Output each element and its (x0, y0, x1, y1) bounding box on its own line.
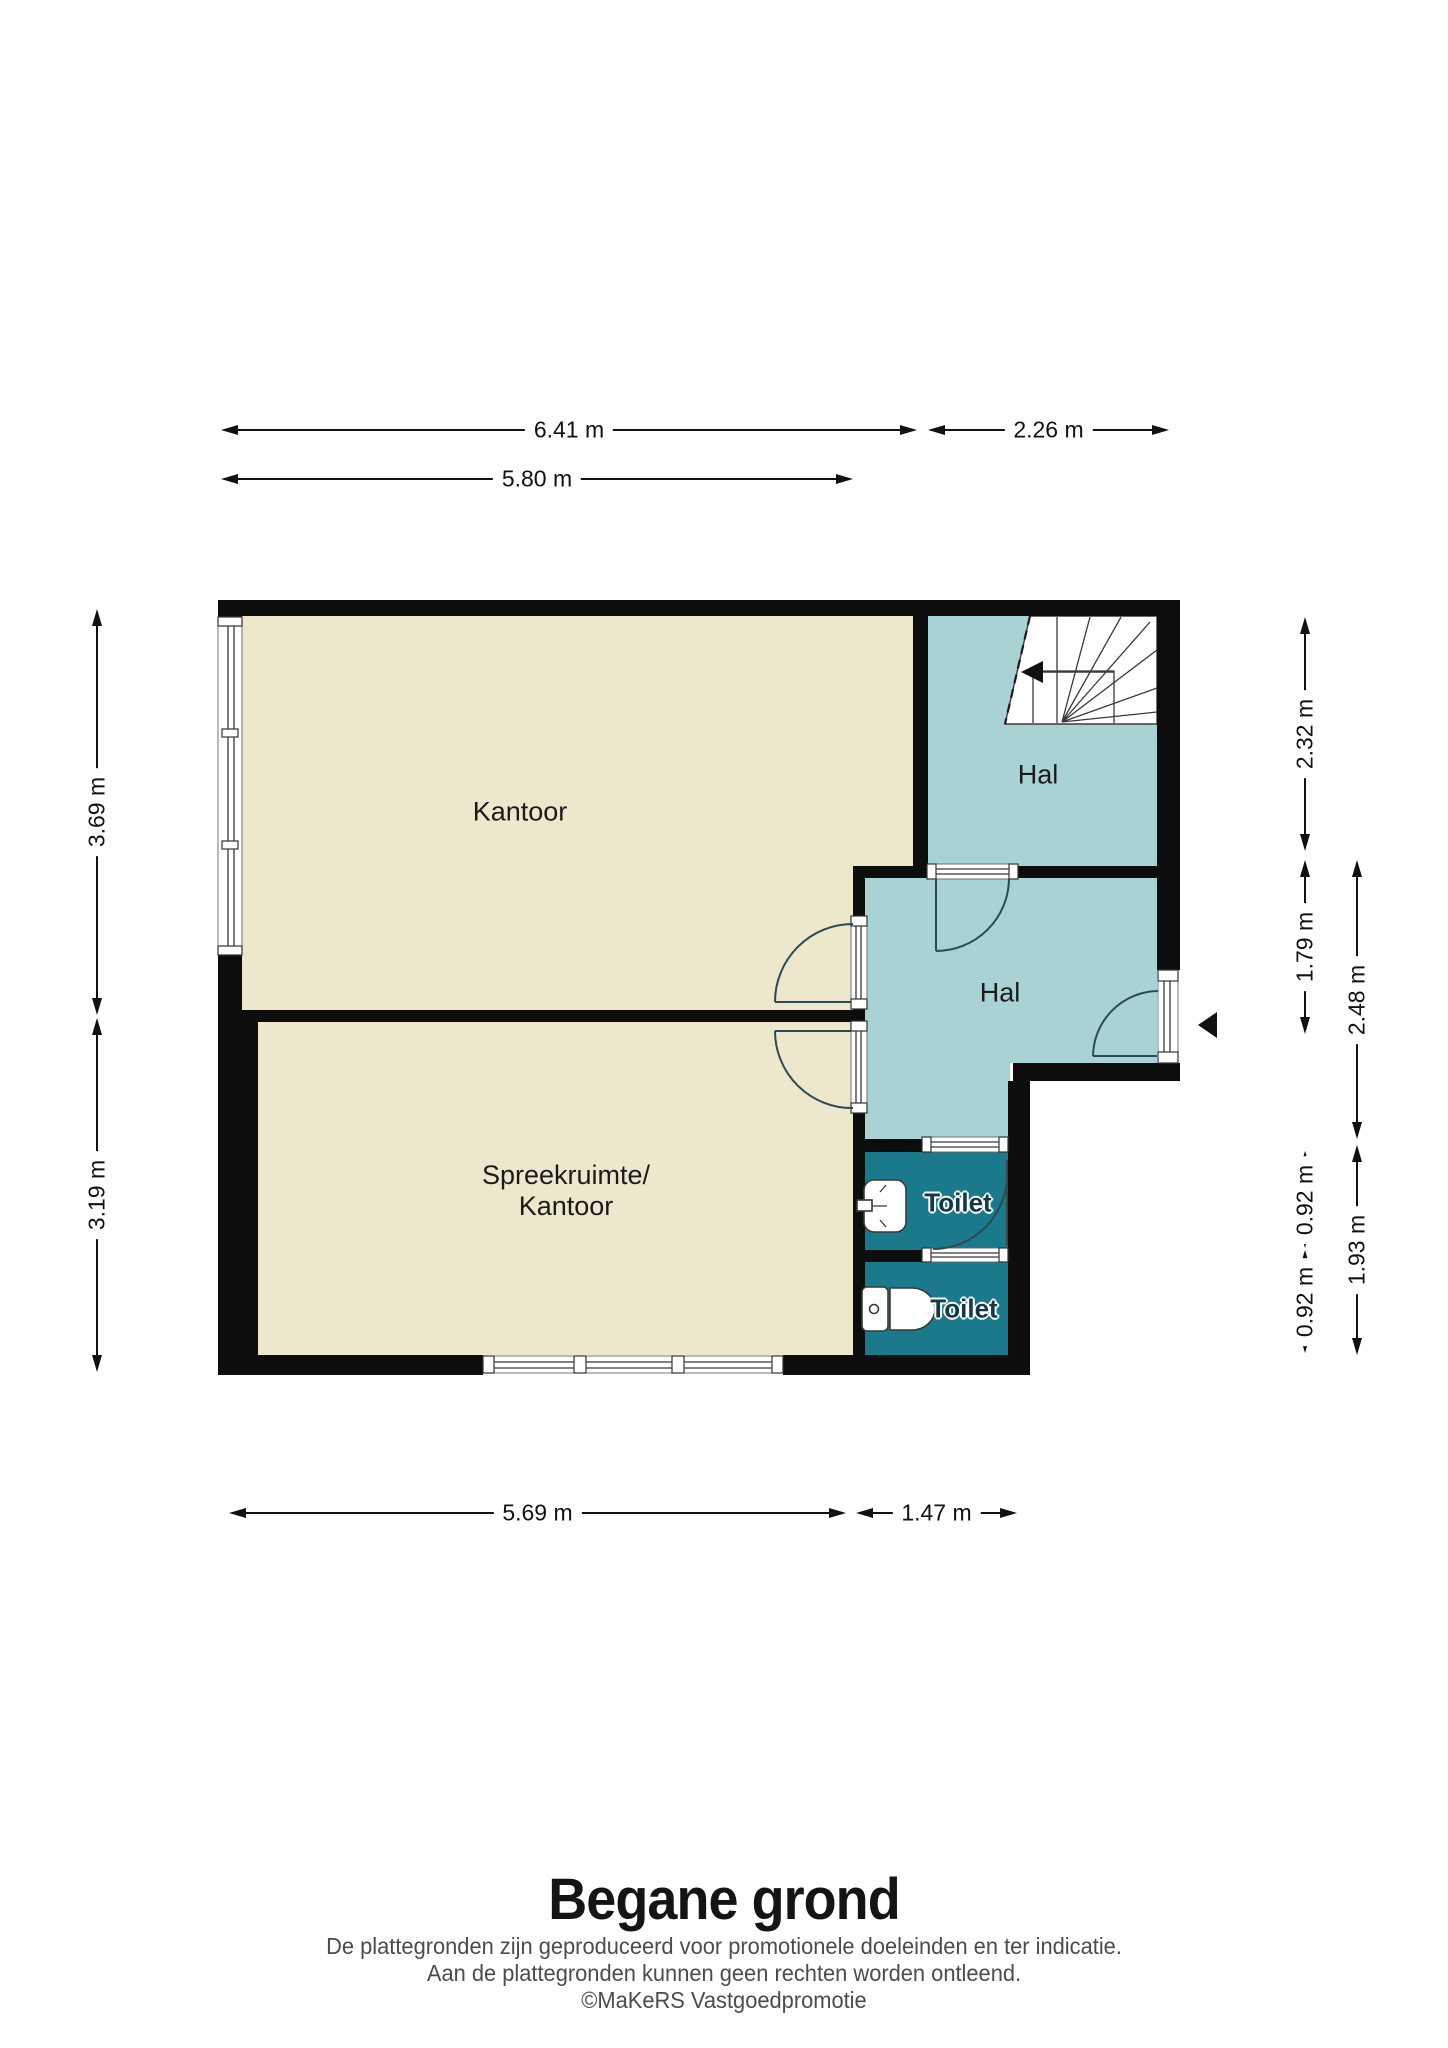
staircase (1005, 616, 1157, 724)
wall-segment (1157, 616, 1180, 970)
wall-segment (783, 1355, 1030, 1375)
arrowhead-up-icon (1300, 860, 1310, 877)
floor-plan-drawing (0, 0, 1448, 2048)
dimension-label: 5.80 m (493, 466, 581, 493)
dimension-width-kantoor: 5.80 m (222, 471, 852, 487)
arrowhead-right-icon (900, 425, 917, 435)
room-label-spreekruimte: Spreekruimte/ Kantoor (482, 1160, 650, 1222)
arrowhead-down-icon (92, 1355, 102, 1372)
arrowhead-up-icon (1352, 1145, 1362, 1162)
dimension-width-total: 6.41 m (222, 422, 916, 438)
dimension-height-toilet-bottom: 0.92 m (1297, 1251, 1313, 1352)
disclaimer: De plattegronden zijn geproduceerd voor … (51, 1933, 1398, 2014)
door-frame-toilet-top (922, 1137, 1008, 1152)
door-frame-kantoor (851, 916, 867, 1009)
arrowhead-left-icon (221, 425, 238, 435)
wall-segment (853, 1110, 865, 1375)
arrowhead-down-icon (1300, 1017, 1310, 1034)
dimension-label: 1.47 m (892, 1500, 980, 1527)
arrowhead-left-icon (928, 425, 945, 435)
wall-segment (218, 1010, 258, 1375)
room-label-toilet-bottom: Toilet (930, 1294, 997, 1325)
dimension-label: 2.32 m (1292, 690, 1319, 778)
entrance-arrow-icon (1198, 1012, 1217, 1038)
washbasin-icon (857, 1180, 906, 1232)
dimension-label: 0.92 m (1292, 1257, 1319, 1345)
arrowhead-right-icon (1152, 425, 1169, 435)
room-label-kantoor: Kantoor (473, 797, 568, 828)
dimension-width-bottom-right: 1.47 m (857, 1505, 1016, 1521)
door-frame-spreekruimte (851, 1021, 867, 1113)
dimension-label: 0.92 m (1292, 1155, 1319, 1243)
dimension-label: 5.69 m (493, 1500, 581, 1527)
room-label-toilet-top: Toilet (924, 1188, 991, 1219)
arrowhead-up-icon (92, 609, 102, 626)
arrowhead-up-icon (1352, 860, 1362, 877)
arrowhead-down-icon (1352, 1338, 1362, 1355)
arrowhead-up-icon (1300, 617, 1310, 634)
dimension-width-bottom-left: 5.69 m (230, 1505, 845, 1521)
toilet-icon (862, 1287, 935, 1331)
arrowhead-up-icon (92, 1018, 102, 1035)
wall-segment (218, 1010, 853, 1022)
dimension-height-spreekruimte: 3.19 m (89, 1019, 105, 1371)
door-frame-toilet-bottom (922, 1248, 1008, 1262)
dimension-height-toilets-total: 1.93 m (1349, 1146, 1365, 1354)
floorplan-page: Kantoor Spreekruimte/ Kantoor Hal Hal To… (0, 0, 1448, 2048)
dimension-height-hal-mid: 1.79 m (1297, 861, 1313, 1033)
dimension-height-toilet-top: 0.92 m (1297, 1152, 1313, 1247)
arrowhead-left-icon (221, 474, 238, 484)
room-label-spreekruimte-line1: Spreekruimte/ (482, 1160, 650, 1191)
window-bottom (483, 1356, 783, 1373)
dimension-label: 1.93 m (1344, 1206, 1371, 1294)
arrowhead-down-icon (92, 998, 102, 1015)
window-left (218, 617, 242, 955)
wall-segment (218, 600, 1180, 616)
disclaimer-line-1: De plattegronden zijn geproduceerd voor … (51, 1933, 1398, 1960)
wall-segment (865, 1250, 922, 1262)
room-label-spreekruimte-line2: Kantoor (482, 1191, 650, 1222)
dimension-label: 3.19 m (84, 1151, 111, 1239)
door-frame-entry (1158, 970, 1178, 1063)
room-kantoor-fill (242, 616, 913, 1010)
wall-segment (1013, 1063, 1180, 1081)
dimension-label: 3.69 m (84, 768, 111, 856)
room-label-hal-mid: Hal (980, 978, 1021, 1009)
arrowhead-right-icon (836, 474, 853, 484)
arrowhead-left-icon (856, 1508, 873, 1518)
wall-segment (853, 866, 927, 878)
arrowhead-right-icon (1000, 1508, 1017, 1518)
wall-segment (853, 1008, 865, 1022)
wall-segment (865, 1139, 922, 1152)
wall-segment (218, 1355, 483, 1375)
wall-segment (853, 878, 865, 917)
wall-segment (1018, 866, 1157, 878)
arrowhead-down-icon (1300, 834, 1310, 851)
dimension-height-kantoor: 3.69 m (89, 610, 105, 1014)
arrowhead-right-icon (829, 1508, 846, 1518)
dimension-width-right: 2.26 m (929, 422, 1168, 438)
arrowhead-down-icon (1352, 1122, 1362, 1139)
dimension-height-hal-full: 2.48 m (1349, 861, 1365, 1138)
wall-segment (1008, 1081, 1030, 1375)
room-label-hal-top: Hal (1018, 760, 1059, 791)
disclaimer-line-3: ©MaKeRS Vastgoedpromotie (51, 1987, 1398, 2014)
page-title: Begane grond (51, 1866, 1398, 1933)
arrowhead-left-icon (229, 1508, 246, 1518)
dimension-label: 2.48 m (1344, 955, 1371, 1043)
dimension-height-hal-top: 2.32 m (1297, 618, 1313, 850)
disclaimer-line-2: Aan de plattegronden kunnen geen rechten… (51, 1960, 1398, 1987)
door-frame-hal-top (927, 864, 1018, 879)
dimension-label: 1.79 m (1292, 903, 1319, 991)
dimension-label: 6.41 m (525, 417, 613, 444)
dimension-label: 2.26 m (1004, 417, 1092, 444)
wall-segment (913, 616, 928, 878)
